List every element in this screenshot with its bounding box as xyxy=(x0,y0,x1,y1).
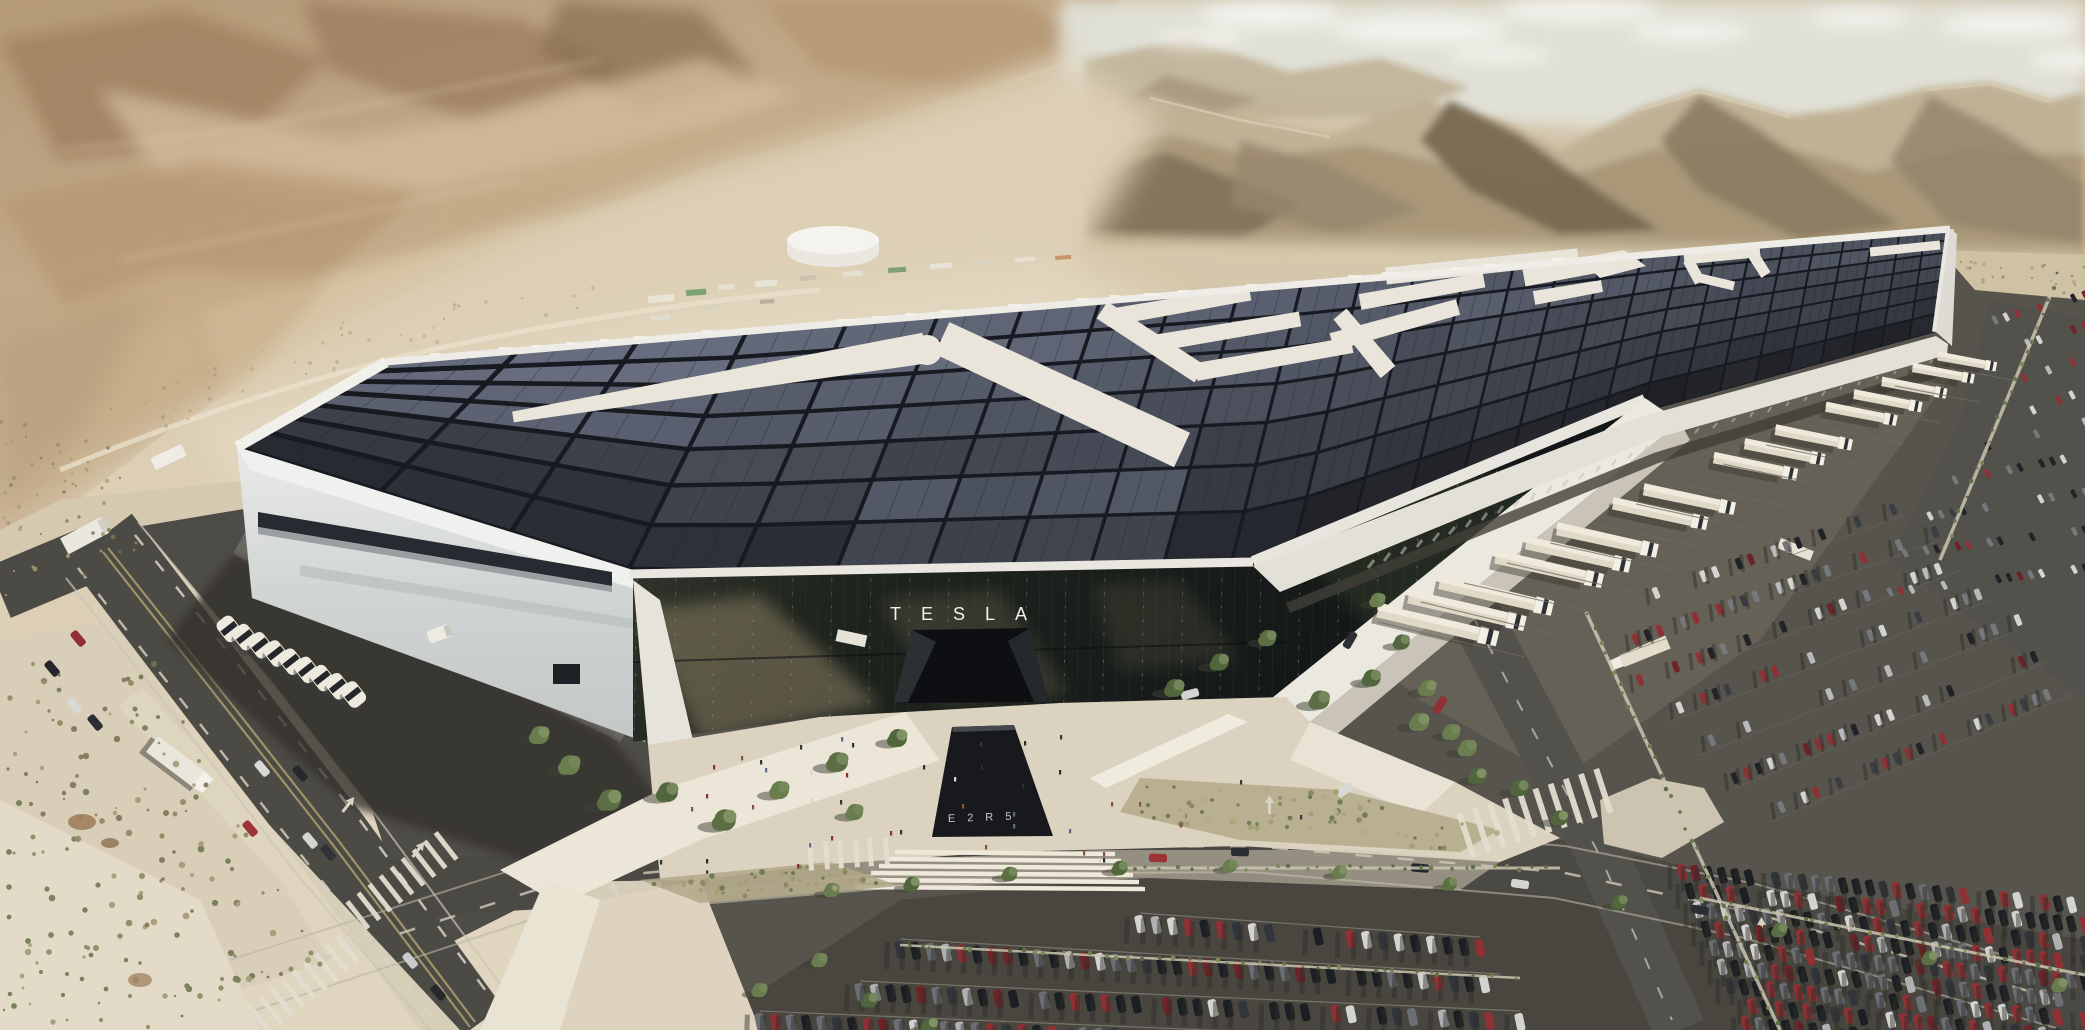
svg-text:TESLA: TESLA xyxy=(890,604,1047,624)
